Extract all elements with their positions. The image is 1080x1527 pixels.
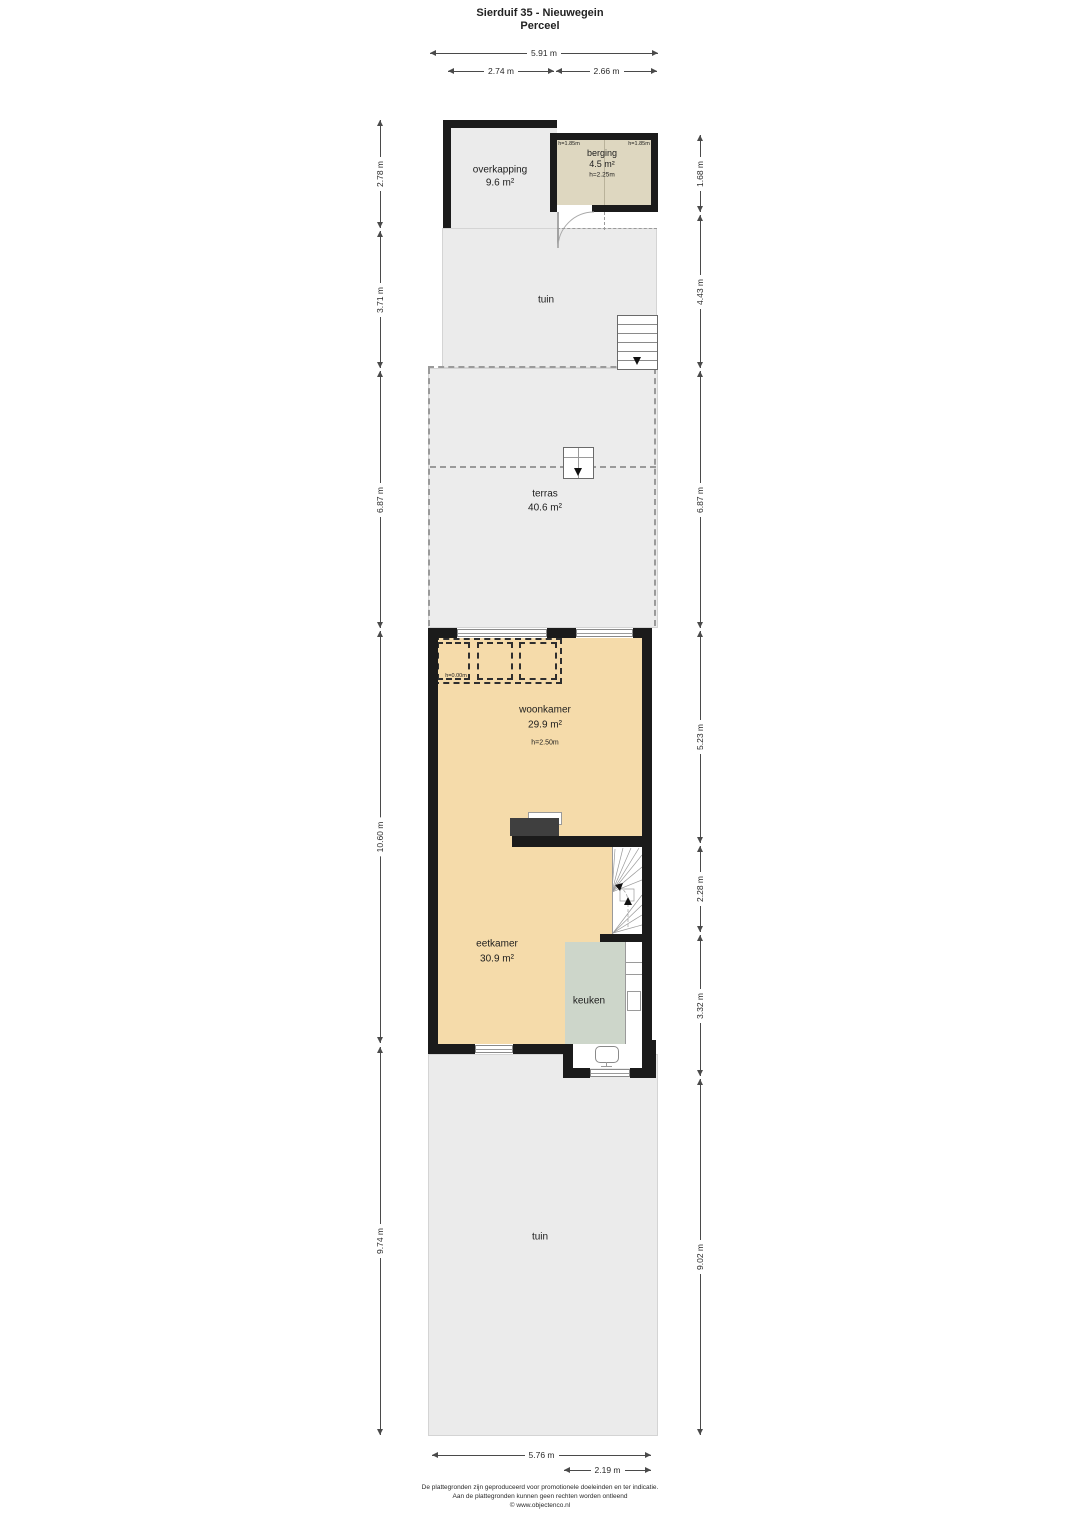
berging-door [556,210,596,252]
wall-stairs-keuken [600,934,642,942]
dimension-label: 2.28 m [695,872,705,906]
cabinet-dark [510,818,559,836]
arrowhead-icon [548,68,554,74]
floorplan-page: Sierduif 35 - Nieuwegein Perceel 5.91 m … [0,0,1080,1527]
berging-label: berging [587,148,617,158]
arrowhead-icon [697,926,703,932]
dimension-bottom-total: 5.76 m [432,1451,651,1459]
dimension-label: 4.43 m [695,275,705,309]
copyright-line: © www.objectenco.nl [510,1502,570,1509]
keuken-floor [565,942,625,1044]
page-title: Sierduif 35 - Nieuwegein [476,7,603,19]
window-back-left [475,1045,513,1053]
sink-tap-icon [601,1066,612,1067]
dimension-label: 5.23 m [695,720,705,754]
woonkamer-label: woonkamer [519,705,571,716]
overkapping-wall-top [443,120,557,128]
dimension-right-tuin-top: 4.43 m [696,215,704,368]
arrowhead-icon [377,1429,383,1435]
keuken-label: keuken [573,996,605,1007]
wall-keuken-bottom-b [630,1068,656,1078]
dimension-bottom-keuken: 2.19 m [564,1466,651,1474]
berging-wall-right [651,133,658,212]
dimension-label: 9.02 m [695,1240,705,1274]
dimension-right-stairs: 2.28 m [696,846,704,932]
tuin-bottom-floor [428,1054,658,1436]
dimension-left-terras: 6.87 m [376,371,384,628]
dimension-label: 10.60 m [375,818,385,857]
dimension-right-berging: 1.68 m [696,135,704,212]
counter-divider [625,974,642,975]
arrowhead-icon [697,837,703,843]
sink [595,1046,619,1063]
dimension-right-tuin-bottom: 9.02 m [696,1079,704,1435]
arrowhead-icon [697,622,703,628]
dimension-left-tuin-top: 3.71 m [376,231,384,368]
dimension-top-right: 2.66 m [556,67,657,75]
dimension-label: 5.91 m [527,48,561,58]
arrowhead-icon [377,622,383,628]
dimension-left-house: 10.60 m [376,631,384,1043]
arrowhead-icon [652,50,658,56]
dimension-top-total: 5.91 m [430,49,658,57]
wall-top-b [547,628,576,638]
berging-area: 4.5 m² [589,159,615,169]
arrowhead-icon [697,362,703,368]
berging-wall-left [550,133,557,212]
arrowhead-icon [697,206,703,212]
void-panel [477,642,513,680]
terras-steps-line [564,457,593,458]
dimension-right-terras: 6.87 m [696,371,704,628]
dashed-extension-line [557,228,657,229]
dimension-right-keuken: 3.32 m [696,935,704,1076]
arrowhead-icon [697,1429,703,1435]
fence-line [654,368,656,626]
arrowhead-icon [645,1467,651,1473]
arrowhead-icon [697,1070,703,1076]
kitchen-appliance [627,991,641,1011]
dimension-label: 3.71 m [375,283,385,317]
dimension-right-woonkamer: 5.23 m [696,631,704,843]
woonkamer-area: 29.9 m² [528,720,562,731]
arrowhead-icon [377,222,383,228]
stairs-down-arrow-icon [633,357,641,365]
overkapping-area: 9.6 m² [486,178,514,189]
fence-line [430,466,656,468]
window-front-right [576,629,633,637]
dimension-label: 1.68 m [695,157,705,191]
eetkamer-label: eetkamer [476,939,518,950]
berging-height-right: h=1.85m [628,141,650,147]
steps-down-arrow-icon [574,468,582,476]
dimension-label: 9.74 m [375,1224,385,1258]
arrowhead-icon [377,1037,383,1043]
page-subtitle: Perceel [520,20,559,32]
dimension-left-overkapping: 2.78 m [376,120,384,228]
dimension-label: 2.19 m [591,1465,625,1475]
void-panel [519,642,557,680]
wall-bottom-a [428,1044,475,1054]
berging-height: h=2.25m [589,172,614,179]
disclaimer-line-2: Aan de plattegronden kunnen geen rechten… [453,1493,628,1500]
overkapping-wall-left [443,120,451,228]
arrowhead-icon [651,68,657,74]
window-front-left [457,629,547,637]
wall-left [428,628,438,1054]
dimension-label: 6.87 m [375,483,385,517]
window-keuken [590,1069,630,1077]
counter-divider [625,962,642,963]
terras-area: 40.6 m² [528,503,562,514]
dimension-label: 2.78 m [375,157,385,191]
berging-height-left: h=1.85m [558,141,580,147]
eetkamer-area: 30.9 m² [480,954,514,965]
wall-mid [512,836,642,847]
dimension-left-tuin-bottom: 9.74 m [376,1047,384,1435]
disclaimer-line-1: De plattegronden zijn geproduceerd voor … [422,1484,659,1491]
berging-wall-top [550,133,658,140]
stairs-treads [612,847,642,934]
void-height-label: h=0.00m [445,673,467,679]
arrowhead-icon [377,362,383,368]
dimension-label: 2.74 m [484,66,518,76]
dimension-label: 6.87 m [695,483,705,517]
berging-wall-bottom [592,205,658,212]
dimension-label: 3.32 m [695,989,705,1023]
wall-keuken-bottom-a [563,1068,590,1078]
dimension-top-left: 2.74 m [448,67,554,75]
wall-right [642,628,652,1040]
fence-line [428,368,430,626]
woonkamer-height: h=2.50m [531,740,558,747]
overkapping-label: overkapping [473,165,527,176]
terras-label: terras [532,489,558,500]
tuin-top-label: tuin [538,295,554,306]
arrowhead-icon [645,1452,651,1458]
dimension-label: 2.66 m [590,66,624,76]
dimension-label: 5.76 m [525,1450,559,1460]
tuin-bottom-label: tuin [532,1232,548,1243]
